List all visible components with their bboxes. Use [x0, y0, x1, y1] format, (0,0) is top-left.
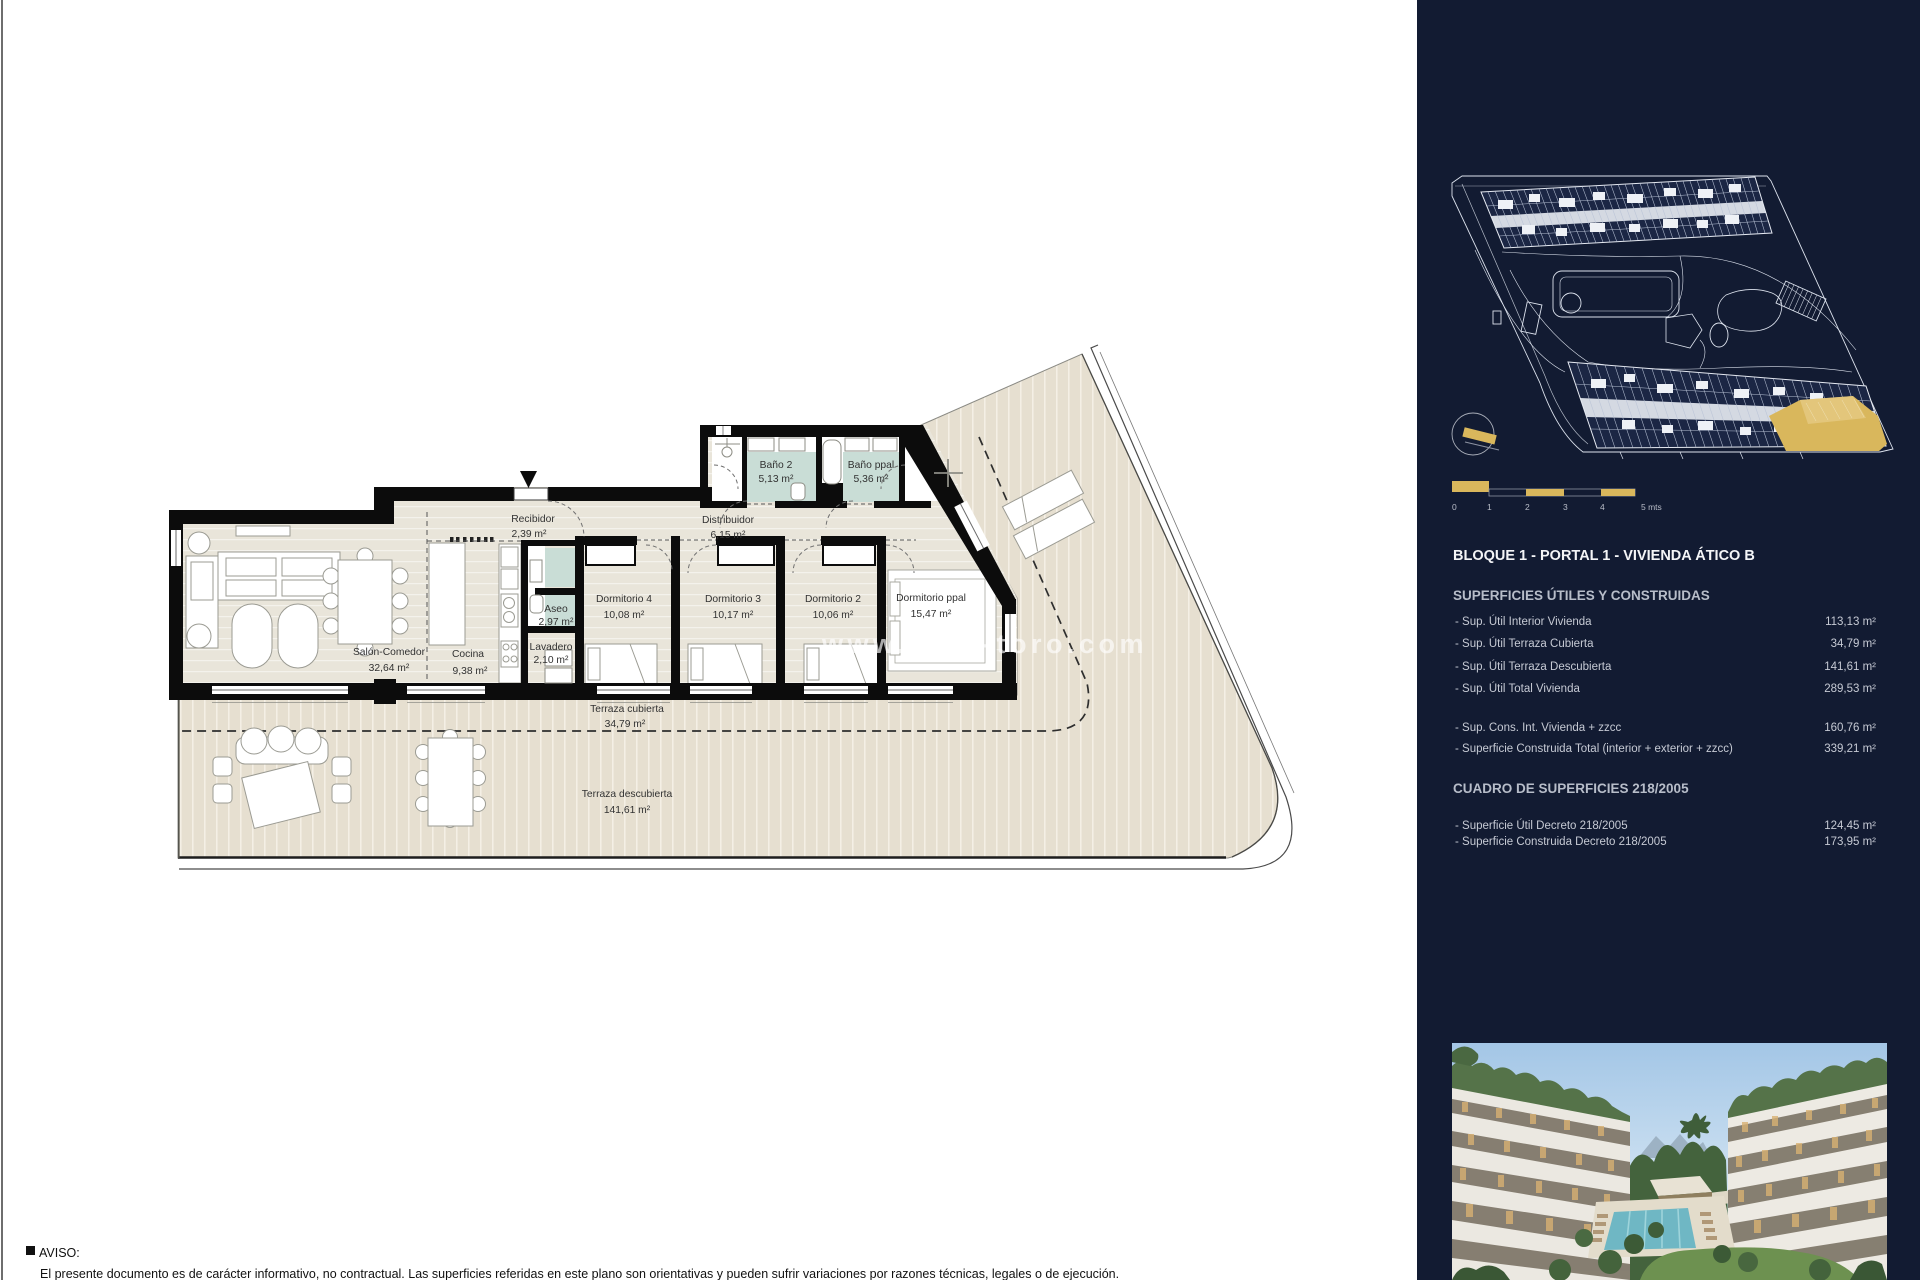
- svg-text:CUADRO DE SUPERFICIES 218/2005: CUADRO DE SUPERFICIES 218/2005: [1453, 781, 1689, 796]
- svg-text:289,53 m²: 289,53 m²: [1824, 683, 1876, 695]
- svg-text:Baño ppal: Baño ppal: [848, 460, 894, 471]
- svg-text:AVISO:: AVISO:: [39, 1246, 80, 1260]
- svg-text:2,10 m²: 2,10 m²: [534, 655, 569, 666]
- svg-text:Salón-Comedor: Salón-Comedor: [353, 647, 426, 658]
- svg-text:Dormitorio 2: Dormitorio 2: [805, 594, 861, 605]
- svg-text:- Superficie Construida Total: - Superficie Construida Total (interior …: [1455, 743, 1733, 755]
- svg-text:6,15 m²: 6,15 m²: [711, 530, 746, 541]
- svg-text:339,21 m²: 339,21 m²: [1824, 743, 1876, 755]
- svg-text:- Superficie Útil Decreto 218: - Superficie Útil Decreto 218/2005: [1455, 819, 1628, 832]
- svg-text:4: 4: [1600, 502, 1605, 512]
- svg-text:2: 2: [1525, 502, 1530, 512]
- svg-text:5,13 m²: 5,13 m²: [759, 474, 794, 485]
- svg-text:173,95 m²: 173,95 m²: [1824, 836, 1876, 848]
- svg-text:- Sup. Útil Total Vivienda: - Sup. Útil Total Vivienda: [1455, 682, 1580, 695]
- svg-text:Dormitorio ppal: Dormitorio ppal: [896, 593, 966, 604]
- svg-text:10,08 m²: 10,08 m²: [604, 610, 645, 621]
- svg-text:Terraza cubierta: Terraza cubierta: [590, 704, 664, 715]
- svg-text:124,45 m²: 124,45 m²: [1824, 820, 1876, 832]
- svg-text:www.piso-toro.com: www.piso-toro.com: [821, 629, 1148, 659]
- svg-text:32,64 m²: 32,64 m²: [369, 663, 410, 674]
- svg-text:BLOQUE 1 - PORTAL 1 - VIVIENDA: BLOQUE 1 - PORTAL 1 - VIVIENDA ÁTICO B: [1453, 547, 1755, 564]
- svg-text:Distribuidor: Distribuidor: [702, 515, 755, 526]
- svg-text:- Sup. Útil Interior Vivienda: - Sup. Útil Interior Vivienda: [1455, 615, 1592, 628]
- svg-text:160,76 m²: 160,76 m²: [1824, 722, 1876, 734]
- svg-text:9,38 m²: 9,38 m²: [453, 666, 488, 677]
- svg-text:- Sup. Útil Terraza Descubier: - Sup. Útil Terraza Descubierta: [1455, 660, 1612, 673]
- svg-text:113,13 m²: 113,13 m²: [1825, 616, 1876, 628]
- svg-text:2,39 m²: 2,39 m²: [512, 529, 547, 540]
- svg-text:Dormitorio 4: Dormitorio 4: [596, 594, 652, 605]
- svg-text:Aseo: Aseo: [544, 604, 568, 615]
- svg-text:2,97 m²: 2,97 m²: [539, 617, 574, 628]
- svg-text:- Sup. Cons. Int. Vivienda +: - Sup. Cons. Int. Vivienda + zzcc: [1455, 722, 1622, 734]
- svg-text:Cocina: Cocina: [452, 649, 484, 660]
- svg-text:SUPERFICIES ÚTILES Y CONSTRUID: SUPERFICIES ÚTILES Y CONSTRUIDAS: [1453, 588, 1710, 603]
- svg-text:Baño 2: Baño 2: [760, 460, 793, 471]
- svg-text:0: 0: [1452, 502, 1457, 512]
- svg-text:34,79 m²: 34,79 m²: [605, 719, 646, 730]
- svg-text:5,36 m²: 5,36 m²: [854, 474, 889, 485]
- svg-text:Recibidor: Recibidor: [511, 514, 555, 525]
- svg-text:15,47 m²: 15,47 m²: [911, 609, 952, 620]
- svg-text:5 mts: 5 mts: [1641, 502, 1662, 512]
- svg-text:141,61 m²: 141,61 m²: [1824, 661, 1876, 673]
- svg-text:- Superficie Construida Decre: - Superficie Construida Decreto 218/2005: [1455, 836, 1667, 848]
- svg-text:10,06 m²: 10,06 m²: [813, 610, 854, 621]
- svg-text:Terraza descubierta: Terraza descubierta: [582, 789, 673, 800]
- svg-text:1: 1: [1487, 502, 1492, 512]
- svg-text:El presente documento es de ca: El presente documento es de carácter inf…: [40, 1267, 1119, 1280]
- svg-text:141,61 m²: 141,61 m²: [604, 805, 651, 816]
- svg-text:10,17 m²: 10,17 m²: [713, 610, 754, 621]
- svg-text:- Sup. Útil Terraza Cubierta: - Sup. Útil Terraza Cubierta: [1455, 637, 1594, 650]
- svg-text:3: 3: [1563, 502, 1568, 512]
- svg-text:34,79 m²: 34,79 m²: [1831, 638, 1877, 650]
- svg-text:Dormitorio 3: Dormitorio 3: [705, 594, 761, 605]
- svg-text:Lavadero: Lavadero: [530, 642, 573, 653]
